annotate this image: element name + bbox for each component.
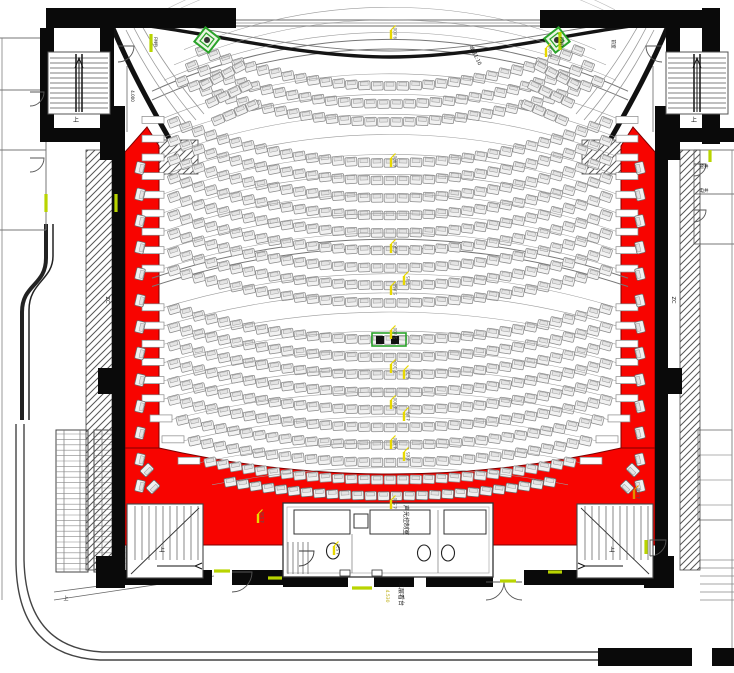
seat [286, 90, 299, 101]
seat-cushion [335, 80, 343, 84]
seat-cushion [501, 345, 509, 350]
seat-cushion [386, 477, 394, 481]
seat [512, 360, 525, 370]
seat-cushion [438, 245, 446, 249]
seat-cushion [373, 476, 381, 480]
seat [242, 464, 255, 474]
plan-label: 上 [63, 595, 68, 602]
seat-cushion [438, 280, 446, 284]
seat [180, 232, 194, 244]
seat-cushion [366, 100, 374, 104]
seat-cushion [347, 263, 355, 267]
pipe-line [22, 224, 46, 420]
seat-cushion [257, 467, 265, 472]
seat [499, 200, 512, 211]
seat [320, 77, 333, 87]
seat [204, 166, 218, 178]
seat [351, 98, 363, 107]
seat-cushion [482, 487, 490, 491]
seat [512, 233, 525, 244]
seat [512, 395, 525, 405]
seat-cushion [457, 490, 465, 494]
seat-cushion [469, 488, 477, 492]
seat [167, 322, 181, 333]
seat [435, 386, 447, 395]
seat [332, 439, 344, 448]
seat-cushion [450, 333, 458, 337]
seat [448, 403, 460, 412]
seat [475, 435, 487, 445]
seat [230, 408, 243, 419]
seat [371, 281, 383, 290]
operator-chair [442, 545, 455, 561]
seat [502, 450, 515, 460]
seat [461, 294, 473, 304]
seat [487, 149, 500, 160]
seat [410, 263, 422, 272]
seat [442, 490, 454, 499]
marker-value: 4.530 [636, 487, 641, 499]
seat-cushion [373, 159, 381, 163]
seat [352, 116, 364, 125]
seat [423, 262, 435, 271]
seat [318, 455, 330, 464]
seat [512, 466, 525, 476]
seat-cushion [334, 280, 342, 284]
seat [537, 137, 550, 148]
seat-cushion [463, 403, 471, 407]
seat-cushion [322, 386, 330, 390]
seat [549, 316, 562, 327]
seat-cushion [386, 230, 394, 234]
seat [345, 245, 357, 254]
seat-cushion [283, 364, 291, 369]
seat [255, 324, 268, 334]
seat [294, 73, 307, 83]
seat [423, 387, 435, 396]
seat-cushion [322, 351, 330, 355]
seat [255, 286, 268, 297]
seat [436, 474, 448, 483]
seat [499, 379, 512, 389]
seat [410, 175, 422, 184]
seat [255, 269, 268, 280]
seat-cushion [464, 473, 472, 477]
seat [562, 129, 576, 141]
seat-cushion [334, 335, 342, 339]
seat [281, 381, 294, 391]
seat-cushion [296, 384, 304, 388]
seat-cushion [308, 189, 316, 194]
escalator-frame [56, 430, 88, 572]
seat-cushion [294, 436, 302, 440]
seat [537, 155, 550, 166]
seat [243, 411, 256, 421]
seat-cushion [308, 172, 316, 177]
seat [599, 322, 613, 333]
seat-cushion [425, 423, 433, 427]
seat [423, 405, 435, 414]
seat [201, 438, 214, 449]
seating-area [135, 7, 646, 500]
seat [499, 271, 512, 281]
seat [333, 404, 345, 413]
seat [486, 399, 499, 409]
seat-cushion [425, 476, 433, 480]
seat [217, 260, 230, 271]
seat [436, 174, 448, 184]
seat [333, 79, 345, 89]
seat-cushion [477, 187, 485, 192]
seat-cushion [283, 347, 291, 352]
seat-cushion [476, 223, 484, 228]
seat [255, 179, 268, 190]
seat-cushion [308, 473, 316, 477]
seat [371, 193, 383, 202]
seat-cushion [373, 194, 381, 198]
aisle-step [616, 210, 638, 217]
seat [448, 368, 460, 378]
seat-cushion [477, 205, 485, 210]
seat [229, 155, 242, 166]
seat [510, 65, 523, 76]
aisle-step [616, 340, 638, 347]
seat [339, 490, 351, 499]
seat-cushion [399, 476, 407, 480]
wall [540, 10, 708, 28]
plan-label: 坡道1:10 [468, 44, 484, 66]
seat-cushion [476, 276, 484, 281]
seat-cushion [386, 83, 394, 87]
seat-cushion [476, 401, 484, 405]
seat [319, 295, 331, 305]
seat [281, 255, 294, 265]
seat [319, 243, 331, 253]
seat [358, 353, 370, 362]
seat [423, 280, 435, 289]
seat-cushion [465, 455, 473, 459]
seat-cushion [418, 492, 426, 496]
seat-cushion [399, 82, 407, 86]
aisle-step [616, 395, 638, 402]
marker-value: 5.400 [393, 327, 398, 339]
seat [167, 358, 180, 369]
seat [332, 156, 344, 166]
seat-cushion [322, 369, 330, 373]
seat-cushion [399, 247, 407, 251]
aisle-step [616, 173, 638, 180]
seat [180, 361, 193, 372]
seat [384, 299, 396, 308]
seat-cushion [296, 258, 304, 263]
red-aisle-right [621, 127, 655, 500]
seat [435, 404, 447, 413]
seat-cushion [437, 387, 445, 391]
seat [188, 418, 201, 429]
seat [563, 457, 576, 468]
seat-cushion [322, 78, 330, 83]
seat [180, 307, 193, 318]
aisle-step [178, 457, 200, 464]
seat [204, 148, 218, 160]
seat [410, 458, 422, 467]
seat [476, 453, 488, 463]
seat-cushion [296, 276, 304, 281]
seat-cushion [347, 423, 355, 427]
seat [217, 278, 230, 289]
seat [227, 443, 240, 454]
seat-cushion [270, 398, 278, 403]
stair-top-right [666, 52, 728, 114]
seat-cushion [373, 299, 381, 303]
seat [358, 370, 370, 379]
plan-label: 4.000 [130, 90, 135, 102]
seat [397, 298, 409, 307]
seat-cushion [451, 208, 459, 212]
seat [512, 251, 525, 262]
seat [550, 260, 563, 271]
seat [505, 103, 518, 114]
seat [410, 158, 422, 167]
seat-cushion [251, 482, 259, 487]
seat-cushion [360, 264, 368, 268]
seat-cushion [386, 212, 394, 216]
seat [345, 227, 357, 236]
seat [524, 340, 537, 351]
seat [281, 469, 293, 479]
seat-cushion [321, 261, 329, 265]
seat-cushion [334, 297, 342, 301]
seat [384, 194, 396, 203]
seat [525, 464, 538, 474]
seat [294, 400, 306, 410]
seat-cushion [334, 210, 342, 214]
aisle-step [142, 340, 164, 347]
seat [371, 246, 383, 255]
seat-cushion [360, 388, 368, 392]
seat [487, 255, 500, 265]
seat-cushion [270, 363, 278, 368]
seat-cushion [457, 113, 465, 118]
seat [416, 491, 428, 500]
seat [268, 379, 281, 389]
marker-value: 4.530 [260, 511, 265, 523]
seat [460, 75, 473, 85]
seat-cushion [452, 439, 460, 443]
seat [268, 326, 281, 336]
seat-cushion [451, 261, 459, 265]
seat [499, 326, 512, 336]
seat-cushion [283, 329, 291, 334]
seat [448, 278, 460, 288]
floor-plan-svg: 9.0006.9006.3005.8505.855.4005.1005.104.… [0, 0, 734, 673]
seat [423, 422, 435, 431]
seat [187, 80, 201, 92]
seat [358, 158, 370, 167]
seat [371, 158, 383, 167]
seat [571, 44, 585, 56]
seat-cushion [308, 207, 316, 212]
seat [205, 403, 218, 414]
seat [305, 454, 317, 464]
seat [435, 421, 447, 430]
corner-step-line [134, 28, 196, 120]
seat-cushion [268, 451, 276, 456]
seat-cushion [283, 274, 291, 279]
seat [294, 347, 306, 357]
seat-cushion [321, 296, 329, 300]
plan-label: 前室 [610, 40, 617, 49]
seat-cushion [321, 279, 329, 283]
seat [307, 402, 319, 412]
seat [549, 370, 562, 381]
seat [461, 331, 473, 341]
seat [587, 325, 600, 336]
seat [167, 116, 181, 128]
seat [423, 334, 435, 343]
aisle-step [616, 116, 638, 123]
seat-cushion [347, 81, 355, 85]
seat-cushion [412, 336, 420, 340]
seat-cushion [489, 274, 497, 279]
seat-cushion [425, 228, 433, 232]
seat [345, 192, 357, 201]
seat [358, 228, 370, 237]
seat [293, 204, 306, 214]
seat-cushion [334, 262, 342, 266]
seat [378, 492, 390, 501]
seat [167, 376, 180, 387]
seat [254, 143, 267, 154]
seat [574, 382, 587, 393]
seat [262, 103, 275, 114]
seat-cushion [283, 292, 291, 297]
seat [204, 457, 217, 468]
seat-cushion [399, 264, 407, 268]
seat [474, 204, 487, 214]
seat [587, 361, 600, 372]
seat [488, 434, 501, 444]
seat [524, 411, 537, 421]
seat [229, 462, 242, 472]
marker-value: 6.900 [393, 155, 398, 167]
seat [397, 81, 409, 90]
seat [275, 485, 288, 495]
seat-cushion [458, 95, 466, 100]
console-desk [370, 510, 430, 534]
seat-cushion [335, 387, 343, 391]
seat-cushion [367, 118, 375, 122]
aisle-step [142, 395, 164, 402]
seat [397, 353, 409, 362]
seat [306, 241, 318, 251]
seat [461, 206, 474, 216]
seat [345, 157, 357, 166]
seat [384, 458, 396, 467]
seat [423, 297, 435, 306]
plan-label: 声光控制室 [402, 505, 410, 535]
seat [364, 99, 376, 108]
seat-cushion [347, 246, 355, 250]
aisle-step [142, 116, 164, 123]
seat-cushion [367, 492, 375, 496]
seat [229, 137, 242, 148]
console-desk [444, 510, 486, 534]
plan-label: 二层看台 [397, 582, 405, 606]
marker-value: 5.10 [406, 370, 411, 379]
seat [587, 177, 601, 189]
seat-cushion [386, 424, 394, 428]
seat [345, 334, 357, 343]
seat-cushion [464, 189, 472, 194]
seat [450, 455, 462, 464]
seat-cushion [380, 100, 388, 104]
seat-cushion [277, 486, 285, 490]
room-wall [698, 430, 732, 520]
seat [201, 420, 214, 431]
seat-cushion [373, 229, 381, 233]
seat-cushion [347, 476, 355, 480]
seat-cushion [476, 241, 484, 246]
seat [188, 435, 201, 446]
seat [410, 81, 422, 90]
seat [319, 473, 331, 482]
seat [279, 451, 292, 461]
seat-cushion [360, 211, 368, 215]
seat-cushion [347, 370, 355, 374]
seat-cushion [412, 406, 420, 410]
seat [499, 289, 512, 299]
seat [269, 415, 282, 425]
seat [486, 346, 499, 356]
seat [455, 94, 468, 104]
stair-bottom-left [127, 504, 203, 578]
seat [397, 246, 409, 255]
seat [525, 158, 538, 169]
stair-top-left [48, 52, 110, 114]
seat-cushion [431, 116, 439, 120]
seat-cushion [438, 210, 446, 214]
seat [397, 211, 409, 220]
seat-cushion [360, 82, 368, 86]
wall [666, 368, 682, 394]
seat-cushion [386, 459, 394, 463]
seat-cushion [347, 211, 355, 215]
seat-cushion [347, 388, 355, 392]
seat [524, 393, 537, 403]
seat-cushion [360, 229, 368, 233]
seat [307, 331, 319, 341]
seat [205, 350, 218, 361]
marker-value: 5.85 [406, 276, 411, 285]
seat-cushion [425, 388, 433, 392]
seat [574, 328, 587, 339]
seat [281, 238, 294, 248]
seat-cushion [464, 172, 472, 177]
seat [293, 222, 306, 232]
seat [430, 97, 442, 107]
seat-cushion [393, 118, 401, 122]
plan-label: FM甲 [559, 37, 564, 47]
seat [587, 307, 600, 318]
seat [345, 352, 357, 361]
seat-cushion [314, 95, 322, 100]
wall [46, 8, 236, 28]
door-swing [504, 582, 522, 600]
seat-cushion [412, 458, 420, 462]
seat [224, 477, 237, 487]
seat [455, 112, 468, 122]
